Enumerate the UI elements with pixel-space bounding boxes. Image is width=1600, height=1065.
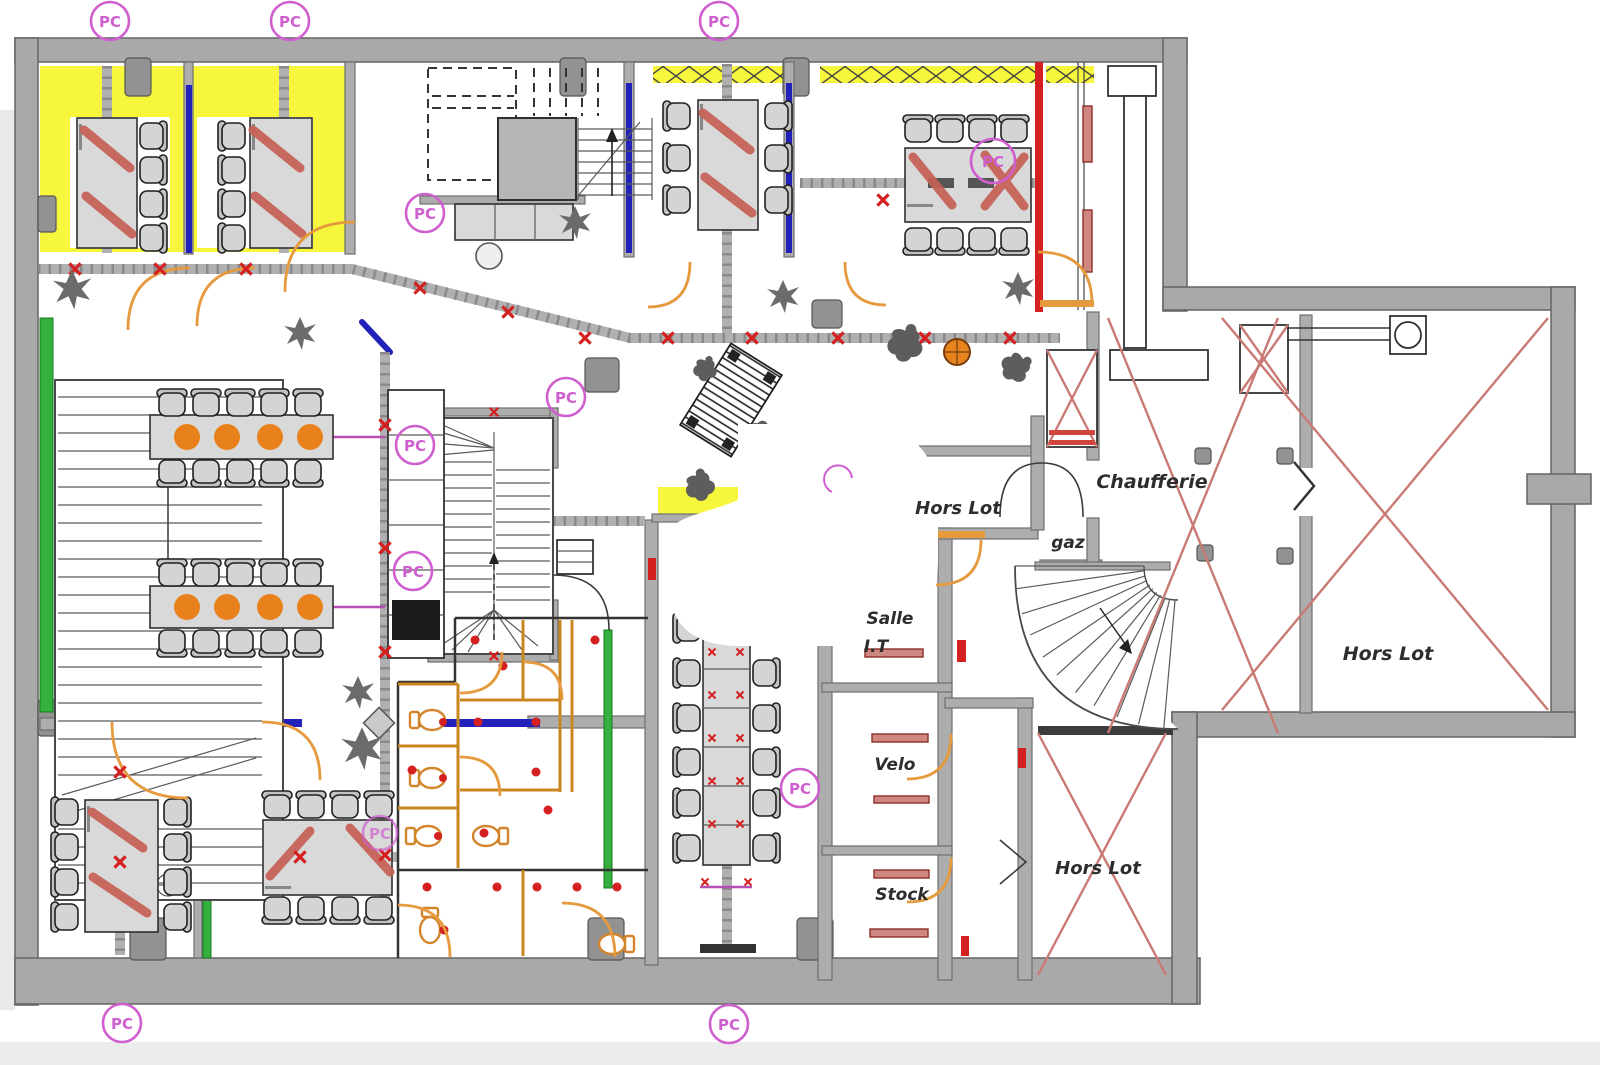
svg-text:PC: PC bbox=[982, 153, 1004, 171]
label-gaz: gaz bbox=[1051, 533, 1085, 553]
svg-text:PC: PC bbox=[414, 205, 436, 223]
basketball bbox=[944, 339, 970, 365]
floor-plan-page: Chaufferie gaz Hors Lot Hors Lot Hors Lo… bbox=[0, 0, 1600, 1065]
svg-text:PC: PC bbox=[369, 825, 391, 843]
label-hors-lot-lobby: Hors Lot bbox=[915, 498, 1002, 519]
svg-text:PC: PC bbox=[789, 780, 811, 798]
round-table bbox=[476, 243, 502, 269]
long-table-b bbox=[150, 559, 333, 657]
pc-marker: PC bbox=[363, 816, 397, 850]
svg-text:PC: PC bbox=[404, 437, 426, 455]
long-table-a bbox=[150, 389, 333, 487]
pc-marker: PC bbox=[710, 1005, 748, 1043]
pc-marker: PC bbox=[971, 139, 1015, 183]
label-hors-lot-lower: Hors Lot bbox=[1055, 858, 1142, 879]
svg-text:PC: PC bbox=[708, 13, 730, 31]
pc-marker: PC bbox=[394, 552, 432, 590]
label-stock: Stock bbox=[875, 885, 930, 905]
toilet bbox=[473, 826, 508, 846]
pc-marker: PC bbox=[547, 378, 585, 416]
label-salle-it-1: Salle bbox=[867, 609, 914, 629]
svg-text:PC: PC bbox=[555, 389, 577, 407]
svg-text:PC: PC bbox=[99, 13, 121, 31]
pc-marker: PC bbox=[396, 426, 434, 464]
floor-plan-drawing: Chaufferie gaz Hors Lot Hors Lot Hors Lo… bbox=[0, 0, 1600, 1065]
label-salle-it-2: I.T bbox=[864, 637, 890, 657]
pc-marker: PC bbox=[781, 769, 819, 807]
meeting-room-3 bbox=[663, 100, 792, 230]
pc-marker: PC bbox=[103, 1004, 141, 1042]
svg-text:PC: PC bbox=[402, 563, 424, 581]
pc-marker: PC bbox=[271, 2, 309, 40]
pc-marker: PC bbox=[700, 2, 738, 40]
pc-marker: PC bbox=[91, 2, 129, 40]
elevator-shaft bbox=[498, 118, 576, 200]
label-hors-lot-right: Hors Lot bbox=[1343, 643, 1434, 665]
label-chaufferie: Chaufferie bbox=[1096, 471, 1207, 493]
svg-text:PC: PC bbox=[279, 13, 301, 31]
svg-text:PC: PC bbox=[718, 1016, 740, 1034]
label-velo: Velo bbox=[875, 755, 916, 775]
appliance bbox=[392, 600, 440, 640]
pc-marker: PC bbox=[406, 194, 444, 232]
toilet bbox=[599, 934, 634, 954]
svg-text:PC: PC bbox=[111, 1015, 133, 1033]
